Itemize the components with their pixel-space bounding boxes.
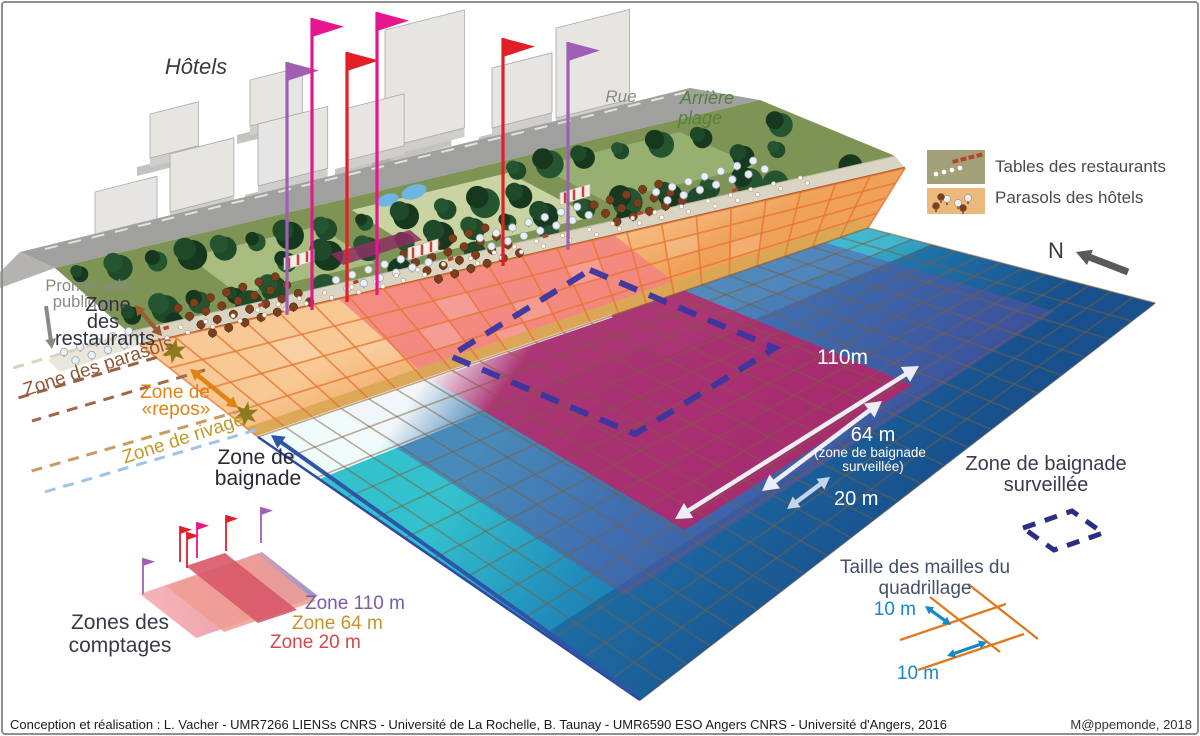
north-arrow-icon — [1087, 256, 1128, 272]
table-icon — [617, 227, 621, 231]
table-icon — [679, 205, 683, 209]
source-label: M@ppemonde, 2018 — [1070, 717, 1192, 732]
parasol-icon — [932, 202, 939, 209]
tree-icon — [767, 141, 779, 153]
white-parasol-icon — [729, 176, 737, 184]
zone-64-label: Zone 64 m — [292, 613, 383, 634]
white-parasol-icon — [733, 162, 741, 170]
tree-icon — [506, 160, 520, 174]
white-parasol-icon — [696, 186, 704, 194]
white-parasol-icon — [557, 208, 565, 216]
flag-icon — [503, 38, 535, 57]
legend-tables-swatch — [927, 150, 985, 184]
back-beach-label-1: Arrière — [679, 88, 734, 108]
white-parasol-icon — [701, 173, 709, 181]
tree-icon — [103, 253, 123, 273]
table-icon — [534, 239, 538, 243]
table-icon — [262, 313, 266, 317]
white-parasol-icon — [680, 191, 688, 199]
tree-icon — [272, 220, 293, 241]
table-icon — [653, 210, 657, 214]
white-parasol-icon — [504, 237, 512, 245]
table-icon — [519, 250, 523, 254]
table-icon — [304, 301, 308, 305]
tree-icon — [690, 127, 705, 142]
table-icon — [381, 284, 385, 288]
white-parasol-icon — [360, 279, 368, 287]
brown-parasol-icon — [481, 224, 489, 232]
table-icon — [541, 244, 545, 248]
tree-icon — [730, 144, 747, 161]
brown-parasol-icon — [606, 196, 614, 204]
table-icon — [957, 165, 962, 170]
table-icon — [468, 256, 472, 260]
table-icon — [637, 221, 641, 225]
table-icon — [204, 319, 208, 323]
mesh-line — [930, 597, 1000, 652]
tree-icon — [645, 130, 665, 150]
measure-110m-label: 110m — [817, 346, 868, 369]
table-icon — [297, 296, 301, 300]
tree-icon — [505, 183, 523, 201]
beach-zoning-diagram: Hôtels Rue Arrière plage Tables des rest… — [0, 0, 1200, 736]
table-icon — [329, 296, 333, 300]
white-parasol-icon — [425, 259, 433, 267]
surveilled-zone-symbol — [1023, 511, 1103, 550]
mesh-size-arrow — [930, 610, 946, 622]
brown-parasol-icon — [434, 275, 442, 283]
legend-parasols-label: Parasols des hôtels — [995, 188, 1143, 207]
brown-parasol-icon — [202, 307, 210, 315]
table-icon — [735, 198, 739, 202]
mesh-title-1: Taille des mailles du — [840, 557, 1010, 578]
white-parasol-icon — [520, 232, 528, 240]
white-parasol-icon — [745, 171, 753, 179]
parasol-icon — [959, 204, 966, 211]
tree-icon — [423, 220, 444, 241]
white-parasol-icon — [492, 229, 500, 237]
white-parasol-icon — [332, 276, 340, 284]
brown-parasol-icon — [239, 283, 247, 291]
table-icon — [756, 192, 760, 196]
table-icon — [706, 199, 710, 203]
white-parasol-icon — [488, 243, 496, 251]
measure-64m-note-1: (zone de baignade — [814, 445, 926, 460]
brown-parasol-icon — [465, 229, 473, 237]
white-parasol-icon — [365, 266, 373, 274]
table-icon — [686, 210, 690, 214]
table-icon — [255, 308, 259, 312]
white-parasol-icon — [664, 197, 672, 205]
tree-icon — [148, 293, 169, 314]
brown-parasol-icon — [225, 324, 233, 332]
diagram-canvas: Hôtels Rue Arrière plage Tables des rest… — [0, 0, 1200, 736]
table-icon — [394, 273, 398, 277]
surveilled-zone-label-1: Zone de baignade — [965, 453, 1126, 475]
tree-icon — [532, 148, 553, 169]
flag-icon — [312, 18, 344, 37]
table-icon — [441, 262, 445, 266]
white-parasol-icon — [652, 188, 660, 196]
table-icon — [350, 285, 354, 289]
white-parasol-icon — [712, 181, 720, 189]
table-icon — [231, 314, 235, 318]
credit-line: Conception et réalisation : L. Vacher - … — [10, 717, 947, 732]
table-icon — [728, 193, 732, 197]
table-icon — [798, 176, 802, 180]
white-parasol-icon — [749, 157, 757, 165]
flag-icon — [347, 52, 379, 71]
brown-parasol-icon — [444, 248, 452, 256]
measure-20m-label: 20 m — [834, 488, 878, 510]
tree-icon — [570, 145, 587, 162]
counting-zones-title-2: comptages — [69, 634, 172, 657]
brown-parasol-icon — [483, 259, 491, 267]
table-icon — [594, 232, 598, 236]
brown-parasol-icon — [655, 180, 663, 188]
north-label: N — [1048, 238, 1064, 263]
brown-parasol-icon — [622, 190, 630, 198]
tree-icon — [145, 250, 160, 265]
white-parasol-icon — [536, 227, 544, 235]
flag-icon — [143, 558, 155, 566]
brown-parasol-icon — [218, 302, 226, 310]
table-icon — [186, 330, 190, 334]
brown-parasol-icon — [222, 288, 230, 296]
brown-parasol-icon — [460, 243, 468, 251]
table-icon — [492, 250, 496, 254]
table-icon — [587, 227, 591, 231]
white-parasol-icon — [397, 255, 405, 263]
white-parasol-icon — [573, 203, 581, 211]
table-icon — [357, 290, 361, 294]
tree-icon — [466, 186, 489, 209]
mesh-title-2: quadrillage — [879, 578, 972, 599]
flag-icon — [287, 62, 319, 81]
table-icon — [179, 325, 183, 329]
brown-parasol-icon — [273, 308, 281, 316]
white-parasol-icon — [476, 234, 484, 242]
brown-parasol-icon — [289, 303, 297, 311]
promenade-arrow — [46, 306, 51, 342]
tree-icon — [434, 198, 449, 213]
brown-parasol-icon — [255, 278, 263, 286]
table-icon — [276, 302, 280, 306]
back-beach-label-2: plage — [677, 108, 722, 128]
table-icon — [560, 233, 564, 237]
table-icon — [610, 222, 614, 226]
table-icon — [423, 273, 427, 277]
parasol-icon — [964, 194, 971, 201]
tree-icon — [355, 214, 367, 226]
tree-icon — [210, 235, 228, 253]
brown-parasol-icon — [601, 209, 609, 217]
flag-icon — [197, 522, 209, 530]
mesh-size-top-label: 10 m — [874, 599, 916, 620]
white-parasol-icon — [761, 165, 769, 173]
brown-parasol-icon — [455, 256, 463, 264]
table-icon — [941, 169, 946, 174]
brown-parasol-icon — [213, 315, 221, 323]
flag-icon — [261, 507, 273, 515]
tree-icon — [611, 142, 623, 154]
white-parasol-icon — [509, 224, 517, 232]
counting-zones-title-1: Zones des — [71, 611, 169, 634]
white-parasol-icon — [409, 264, 417, 272]
table-icon — [660, 215, 664, 219]
brown-parasol-icon — [206, 293, 214, 301]
street-label: Rue — [605, 87, 636, 106]
table-icon — [630, 216, 634, 220]
table-icon — [933, 171, 938, 176]
parasol-icon — [937, 193, 944, 200]
table-icon — [778, 187, 782, 191]
swim-zone-label-2: baignade — [215, 467, 301, 490]
brown-parasol-icon — [174, 304, 182, 312]
table-icon — [771, 182, 775, 186]
table-icon — [805, 181, 809, 185]
brown-parasol-icon — [208, 329, 216, 337]
zone-110-label: Zone 110 m — [305, 593, 405, 614]
table-icon — [211, 324, 215, 328]
brown-parasol-icon — [271, 273, 279, 281]
brown-parasol-icon — [467, 264, 475, 272]
hotels-label: Hôtels — [165, 54, 227, 79]
mesh-line — [968, 584, 1038, 639]
white-parasol-icon — [585, 211, 593, 219]
tree-icon — [173, 238, 196, 261]
white-parasol-icon — [381, 261, 389, 269]
brown-parasol-icon — [634, 199, 642, 207]
white-parasol-icon — [717, 167, 725, 175]
surveilled-zone-label-2: surveillée — [1004, 474, 1088, 496]
brown-parasol-icon — [278, 294, 286, 302]
measure-64m-note-2: surveillée) — [842, 459, 904, 474]
brown-parasol-icon — [448, 234, 456, 242]
brown-parasol-icon — [190, 299, 198, 307]
white-parasol-icon — [348, 271, 356, 279]
brown-parasol-icon — [234, 297, 242, 305]
white-parasol-icon — [685, 178, 693, 186]
brown-parasol-icon — [266, 286, 274, 294]
flag-icon — [180, 526, 192, 534]
table-icon — [512, 245, 516, 249]
tree-icon — [70, 265, 82, 277]
brown-parasol-icon — [590, 201, 598, 209]
table-icon — [749, 187, 753, 191]
tree-icon — [766, 111, 784, 129]
table-icon — [416, 268, 420, 272]
table-icon — [713, 204, 717, 208]
table-icon — [949, 167, 954, 172]
table-icon — [401, 278, 405, 282]
white-parasol-icon — [668, 183, 676, 191]
measure-64m-label: 64 m — [851, 424, 895, 446]
brown-parasol-icon — [638, 185, 646, 193]
tree-icon — [245, 232, 259, 246]
legend-tables-label: Tables des restaurants — [995, 157, 1166, 176]
white-parasol-icon — [525, 219, 533, 227]
brown-parasol-icon — [245, 305, 253, 313]
rest-zone-label-2: «repos» — [142, 399, 211, 420]
brown-parasol-icon — [185, 312, 193, 320]
brown-parasol-icon — [618, 204, 626, 212]
brown-parasol-icon — [250, 291, 258, 299]
table-icon — [448, 267, 452, 271]
flag-icon — [226, 515, 238, 523]
mesh-size-bottom-label: 10 m — [897, 663, 939, 684]
swim-zone-label-1: Zone de — [217, 446, 294, 469]
tree-icon — [390, 201, 410, 221]
brown-parasol-icon — [645, 207, 653, 215]
tree-icon — [312, 217, 329, 234]
white-parasol-icon — [541, 213, 549, 221]
table-icon — [475, 261, 479, 265]
white-parasol-icon — [553, 222, 561, 230]
table-icon — [322, 291, 326, 295]
table-icon — [238, 319, 242, 323]
white-parasol-icon — [569, 217, 577, 225]
zone-20-label: Zone 20 m — [270, 632, 361, 653]
